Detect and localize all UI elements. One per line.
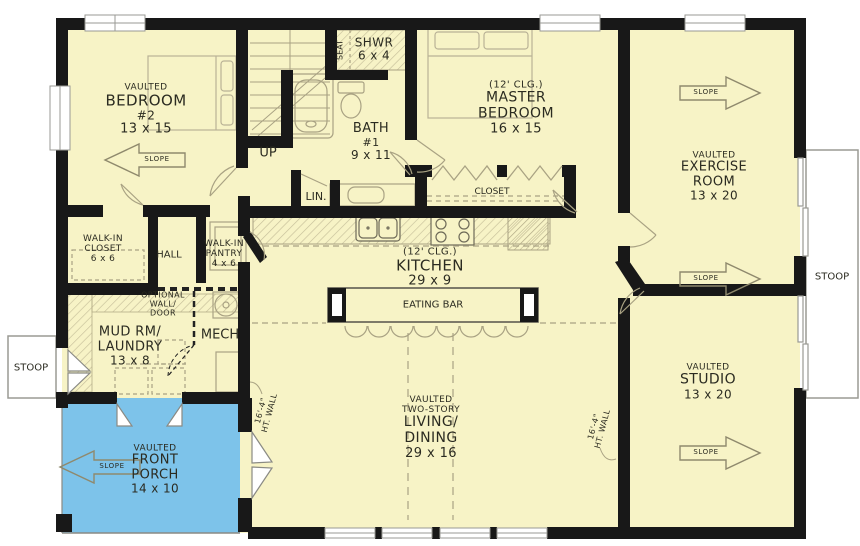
label-master-bedroom: (12' CLG.) MASTER BEDROOM 16 x 15 <box>478 79 554 136</box>
label-stoop-right: STOOP <box>815 271 849 282</box>
label-kitchen: (12' CLG.) KITCHEN 29 x 9 <box>396 247 464 290</box>
window-top-bedroom2 <box>85 15 145 31</box>
label-studio: VAULTED STUDIO 13 x 20 <box>680 362 736 401</box>
label-shower: SHWR 6 x 4 <box>355 37 393 64</box>
slope-text-exercise-1: SLOPE <box>693 89 718 97</box>
label-walk-in-pantry: WALK-IN PANTRY 4 x 6 <box>204 239 244 269</box>
slope-text-bedroom2: SLOPE <box>144 156 169 164</box>
label-linen: LIN. <box>305 191 326 203</box>
label-shower-seat: SEAT <box>337 40 346 60</box>
label-mud-laundry: MUD RM/ LAUNDRY 13 x 8 <box>98 326 163 369</box>
floor-plan: VAULTED BEDROOM #2 13 x 15 SHWR 6 x 4 SE… <box>0 0 860 546</box>
label-eating-bar: EATING BAR <box>403 299 464 310</box>
label-living-dining: VAULTED TWO-STORY LIVING/ DINING 29 x 16 <box>402 395 460 461</box>
label-stairs-up: UP <box>259 147 276 162</box>
kitchen-counter <box>253 214 550 244</box>
label-hall: HALL <box>156 249 182 260</box>
label-stoop-left: STOOP <box>14 362 48 373</box>
window-top-exercise <box>685 15 745 31</box>
label-bath1: BATH #1 9 x 11 <box>351 122 391 162</box>
window-left-bedroom2 <box>50 86 70 150</box>
slope-text-exercise-2: SLOPE <box>693 275 718 283</box>
kitchen-sink <box>356 215 400 241</box>
slope-text-porch: SLOPE <box>99 463 124 471</box>
window-top-master <box>540 15 600 31</box>
label-exercise-room: VAULTED EXERCISE ROOM 13 x 20 <box>681 151 747 204</box>
slope-text-studio: SLOPE <box>693 449 718 457</box>
refrigerator <box>508 214 548 250</box>
label-mech: MECH <box>201 329 239 344</box>
label-master-closet: CLOSET <box>475 187 510 197</box>
label-optional-wall: OPTIONAL WALL/ DOOR <box>141 292 185 319</box>
label-front-porch: VAULTED FRONT PORCH 14 x 10 <box>131 444 179 497</box>
label-walk-in-closet: WALK-IN CLOSET 6 x 6 <box>83 234 123 264</box>
label-bedroom2: VAULTED BEDROOM #2 13 x 15 <box>105 83 186 138</box>
kitchen-range <box>431 215 474 245</box>
